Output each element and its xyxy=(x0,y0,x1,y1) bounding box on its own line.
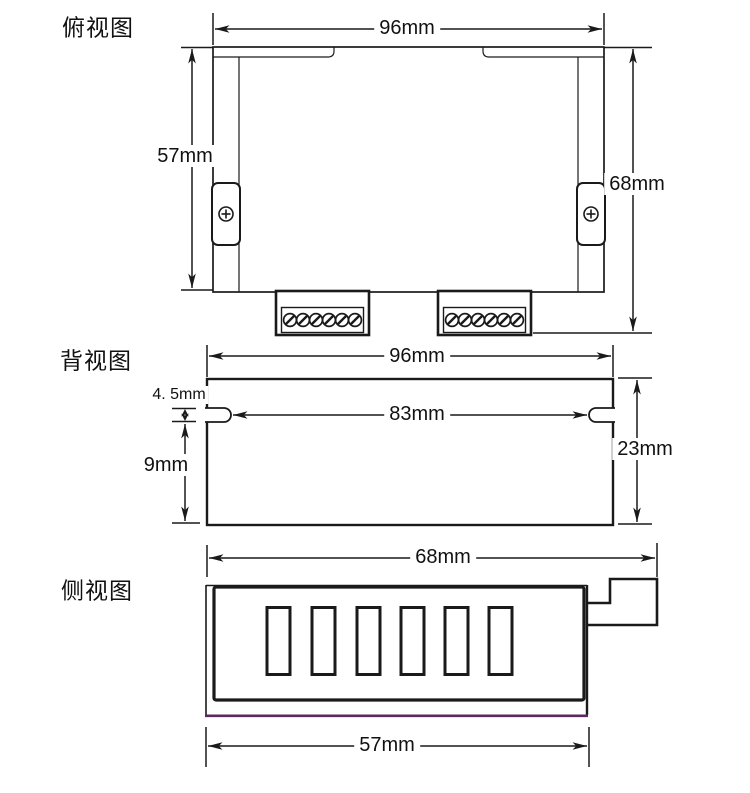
vent-slot xyxy=(401,608,424,675)
arrow-down-icon xyxy=(181,414,189,422)
mounting-flange xyxy=(588,579,657,625)
vent-slot xyxy=(445,608,468,675)
top-view-title: 俯视图 xyxy=(62,17,134,40)
side-view-drawing xyxy=(205,543,657,767)
side-view-body-outline xyxy=(214,587,584,700)
back-view-title: 背视图 xyxy=(60,350,132,373)
dim-label-back-slot-offset: 9mm xyxy=(139,454,193,476)
vent-slots xyxy=(267,608,512,675)
dim-label-back-slot-height: 4. 5mm xyxy=(149,386,208,404)
dim-label-side-body-width: 57mm xyxy=(354,734,420,756)
back-view-body-outline xyxy=(207,379,613,525)
vent-slot xyxy=(489,608,512,675)
dim-label-side-overall-width: 68mm xyxy=(410,546,476,568)
dim-top-body-depth xyxy=(181,48,213,291)
dimension-drawing-page: 俯视图 96mm 57mm 68mm 背视图 96mm 4. 5mm 83mm … xyxy=(0,0,750,793)
terminal-block-left xyxy=(276,291,369,335)
dim-label-top-overall-depth: 68mm xyxy=(604,173,670,195)
right-key-slot xyxy=(589,408,615,422)
line-art xyxy=(0,0,750,793)
top-view-drawing xyxy=(181,13,652,335)
dim-label-back-height: 23mm xyxy=(612,438,678,460)
vent-slot xyxy=(357,608,380,675)
dim-label-back-slot-span: 83mm xyxy=(384,403,450,425)
side-view-title: 侧视图 xyxy=(61,580,133,603)
dim-back-slot-height xyxy=(172,409,196,422)
dim-label-top-body-depth: 57mm xyxy=(152,145,218,167)
dim-label-back-width: 96mm xyxy=(384,345,450,367)
terminal-block-right xyxy=(438,291,531,335)
top-view-body-outline xyxy=(213,47,604,292)
dim-label-top-width: 96mm xyxy=(374,17,440,39)
top-view-left-cover-plate xyxy=(213,47,334,57)
top-view-right-cover-plate xyxy=(483,47,604,57)
back-view-drawing xyxy=(172,345,652,525)
left-key-slot xyxy=(205,408,231,422)
vent-slot xyxy=(267,608,290,675)
vent-slot xyxy=(312,608,335,675)
